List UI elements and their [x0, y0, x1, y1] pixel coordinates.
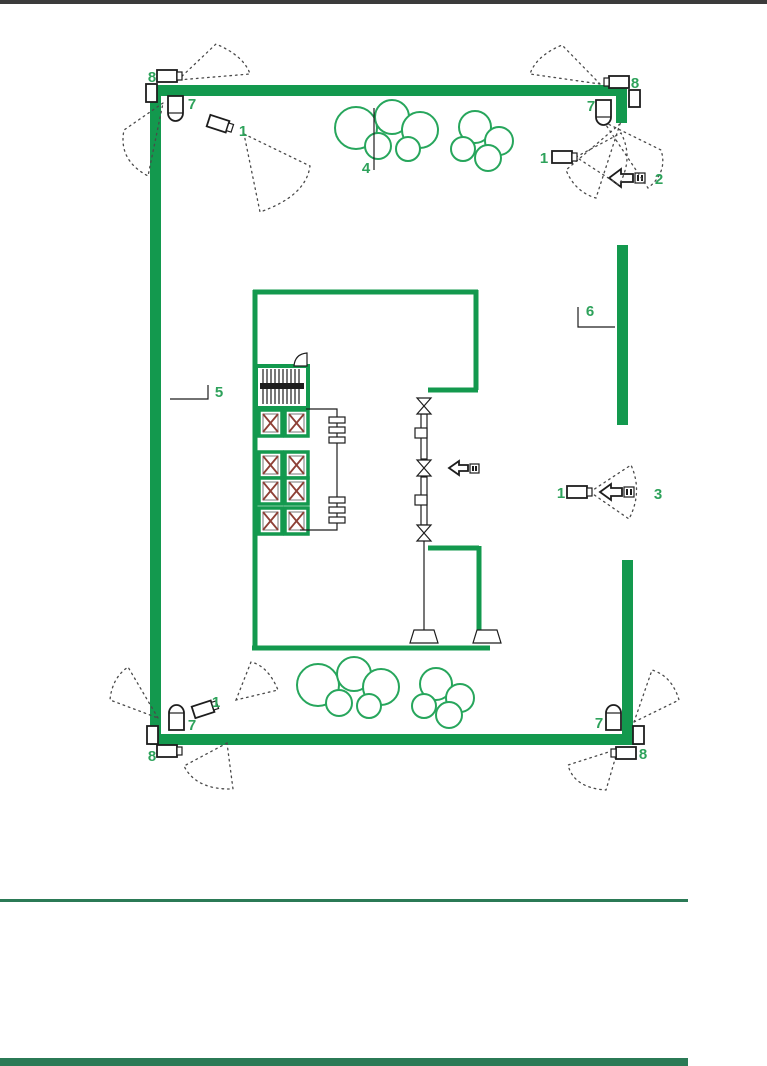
elevator-cell	[285, 452, 308, 478]
camera-lens	[177, 72, 182, 80]
fov-cone	[530, 45, 600, 84]
perimeter-wall-right-lower	[622, 560, 633, 745]
entrance-wall-jog	[415, 495, 427, 505]
callout-6: 6	[586, 303, 594, 320]
callout-8: 8	[631, 75, 639, 92]
camera-body	[567, 486, 587, 498]
perimeter-wall-left	[150, 85, 161, 745]
elevator-cell	[259, 410, 282, 436]
camera-lens	[604, 78, 609, 86]
callout-8: 8	[148, 748, 156, 765]
tree-cluster-bottom-left	[297, 657, 399, 718]
elevator-cell	[259, 508, 282, 534]
document-page: 8 7 1 4 1 2 7 8 6 5 1 3 1 7 8 7 8	[0, 0, 767, 1066]
leader-line-6	[578, 307, 615, 327]
page-top-rule	[0, 0, 767, 4]
fov-cone	[244, 134, 310, 212]
entrance-arrow-2	[609, 169, 645, 187]
callout-7: 7	[188, 96, 196, 113]
callout-4: 4	[362, 160, 371, 177]
arrow-left-icon	[609, 169, 633, 187]
callout-1: 1	[239, 123, 247, 140]
reader-icon	[470, 464, 479, 473]
camera-body	[616, 747, 636, 759]
entrance-wall-jog	[415, 428, 427, 438]
callout-1: 1	[557, 485, 565, 502]
turnstile-icon	[329, 497, 345, 523]
free-wall-segment-6	[617, 245, 628, 425]
callout-7: 7	[595, 715, 603, 732]
stair-door-arc	[294, 353, 307, 366]
reader-icon	[624, 487, 634, 497]
junction-box-icon	[633, 726, 644, 744]
callout-7: 7	[587, 98, 595, 115]
tree-cluster-top-right	[451, 111, 513, 171]
camera-lens	[587, 488, 592, 496]
junction-box-icon	[147, 726, 158, 744]
fixed-camera-middle-right	[567, 486, 592, 498]
reader-icon	[635, 173, 645, 183]
perimeter-wall-bottom	[150, 734, 640, 745]
stairwell	[256, 353, 308, 408]
perimeter-wall-top	[150, 85, 627, 96]
canopy-step-left	[410, 630, 438, 643]
footer-rule-thick	[0, 1058, 688, 1066]
canopy-step-right	[473, 630, 501, 643]
elevator-bank	[259, 410, 308, 534]
junction-box-icon	[629, 90, 640, 107]
callout-3: 3	[654, 486, 662, 503]
double-door-icon	[417, 525, 431, 541]
camera-lens	[177, 747, 182, 755]
stair-handrail	[260, 383, 304, 389]
arrow-left-icon	[600, 484, 622, 500]
arrow-left-icon	[449, 461, 468, 475]
camera-body	[609, 76, 629, 88]
tree-cluster-top-left	[335, 100, 438, 161]
camera-body	[157, 745, 177, 757]
double-door-icon	[417, 460, 431, 476]
callout-7: 7	[188, 717, 196, 734]
callout-1: 1	[212, 694, 220, 711]
site-plan-figure: 8 7 1 4 1 2 7 8 6 5 1 3 1 7 8 7 8	[0, 0, 767, 1066]
fov-cone	[178, 44, 250, 80]
entrance-arrow-lobby	[449, 461, 479, 475]
fov-cone	[236, 662, 278, 700]
callout-8: 8	[639, 746, 647, 763]
camera-lens	[572, 153, 577, 161]
callout-1: 1	[540, 150, 548, 167]
camera-body	[157, 70, 177, 82]
perimeter-wall-top-right-stub	[616, 85, 627, 123]
dome-camera-bottom-left	[169, 705, 184, 730]
elevator-cell	[259, 452, 282, 478]
dome-camera-top-right	[596, 100, 611, 125]
fov-cone	[184, 743, 233, 789]
leader-line-5	[170, 385, 208, 399]
camera-body	[552, 151, 572, 163]
turnstile-icon	[329, 417, 345, 443]
callout-8: 8	[148, 69, 156, 86]
entrance-arrow-3	[600, 484, 634, 500]
elevator-cell	[285, 478, 308, 504]
tree-cluster-bottom-right	[412, 668, 474, 728]
junction-box-icon	[146, 84, 157, 102]
fixed-camera-top-right	[552, 151, 577, 163]
dome-camera-bottom-right	[606, 705, 621, 730]
camera-lens	[611, 749, 616, 757]
callout-2: 2	[655, 171, 663, 188]
dome-camera-top-left	[168, 96, 183, 121]
fov-cone	[634, 670, 679, 722]
footer-rule-thin	[0, 899, 688, 902]
double-door-icon	[417, 398, 431, 414]
fixed-camera-top-left	[207, 115, 234, 134]
elevator-cell	[259, 478, 282, 504]
callout-5: 5	[215, 384, 223, 401]
elevator-cell	[285, 410, 308, 436]
entrance-wall	[410, 398, 501, 643]
